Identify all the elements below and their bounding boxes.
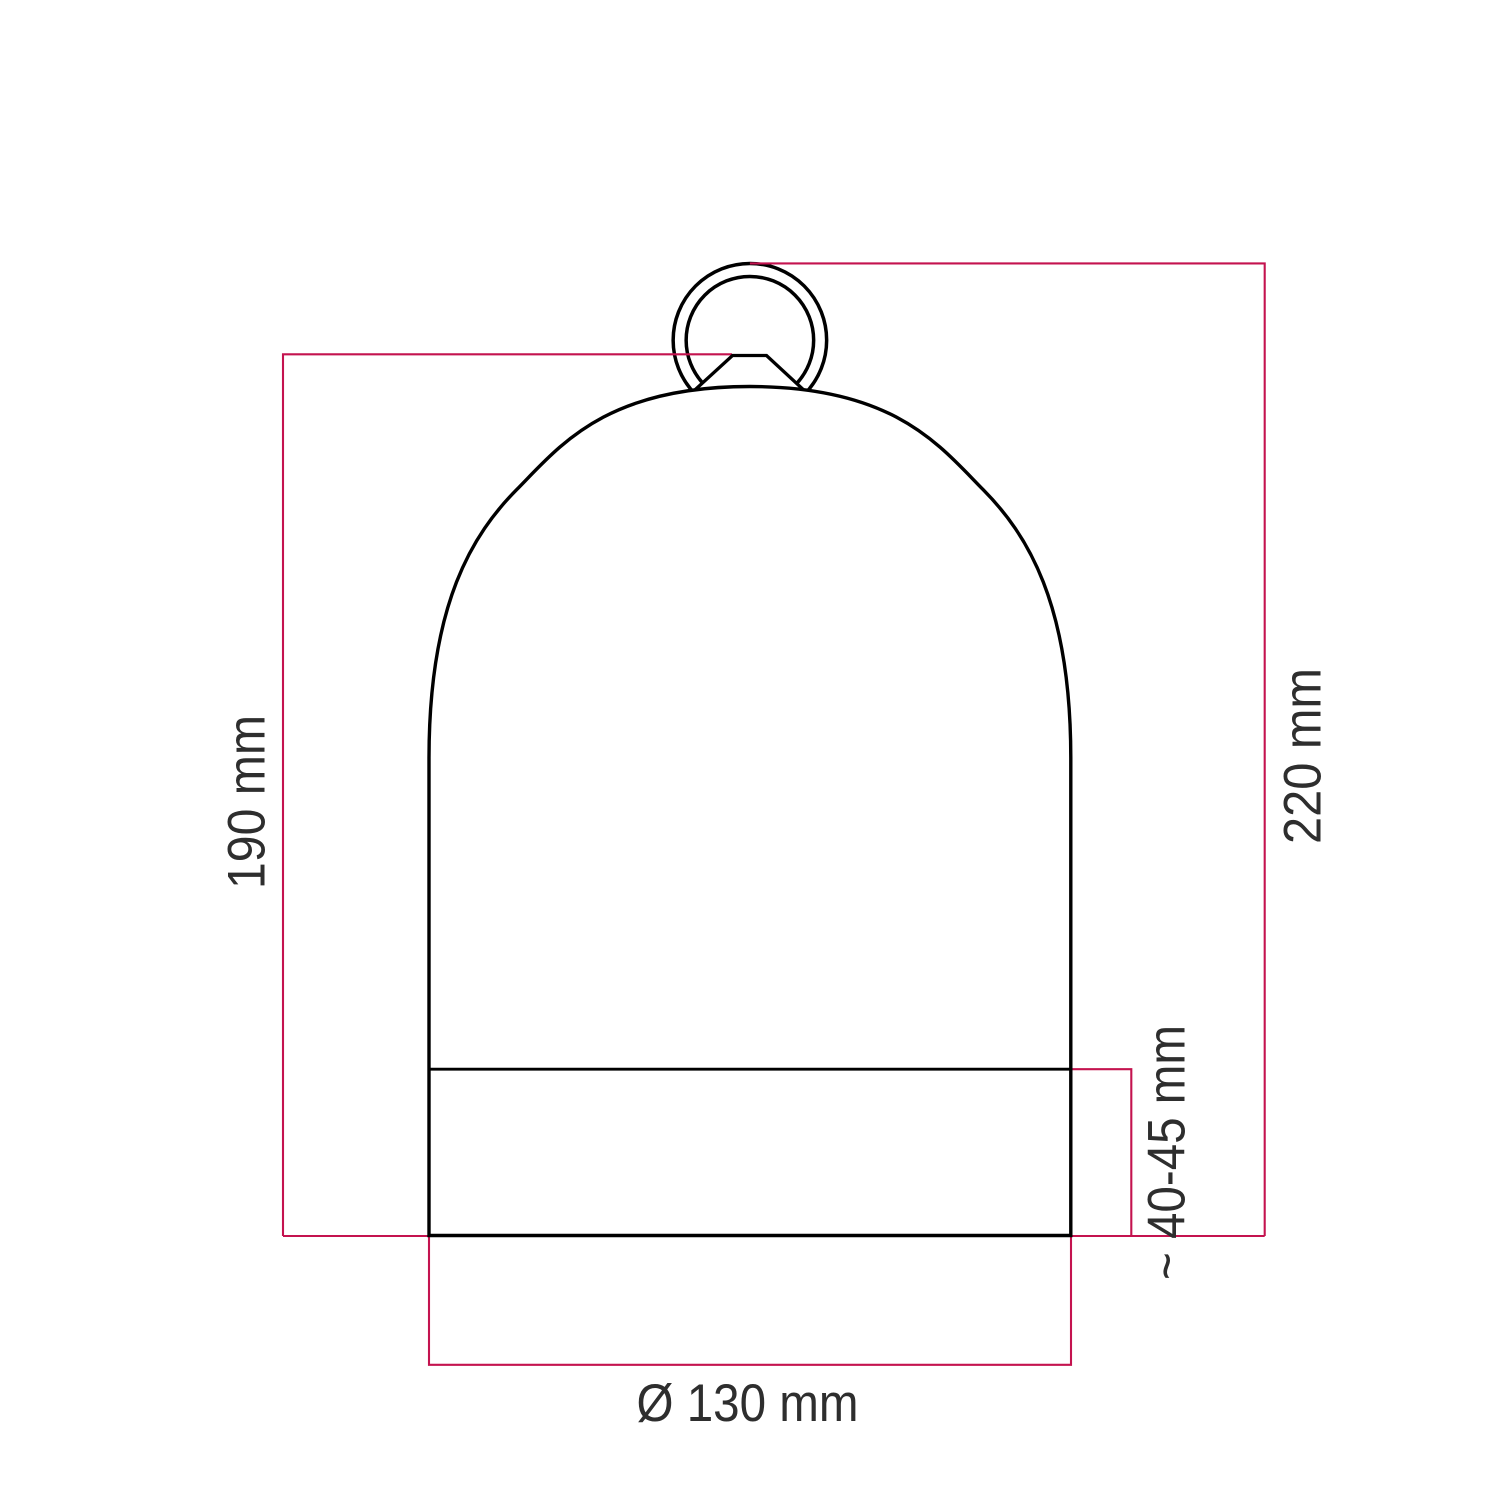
svg-text:190 mm: 190 mm (218, 715, 277, 889)
svg-text:Ø 130 mm: Ø 130 mm (637, 1374, 859, 1433)
svg-text:~ 40-45 mm: ~ 40-45 mm (1138, 1025, 1197, 1280)
svg-text:220 mm: 220 mm (1274, 668, 1333, 844)
